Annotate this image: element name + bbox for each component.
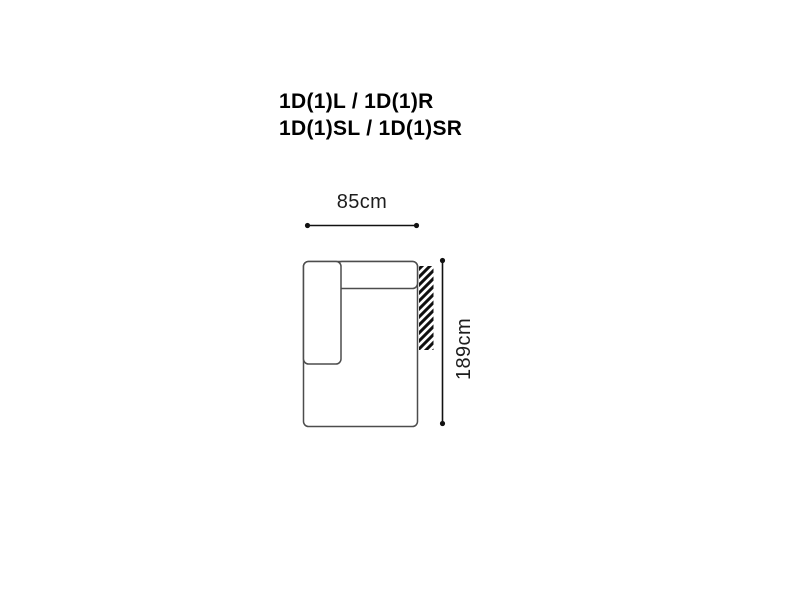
height-dimension-line [440,258,445,426]
height-dimension-top-dot-icon [440,258,445,263]
sofa-back-cushion [337,262,418,289]
sofa-left-armrest [304,262,342,365]
width-dimension-left-dot-icon [305,223,310,228]
height-dimension-bottom-dot-icon [440,421,445,426]
width-dimension-line [305,223,419,228]
product-dimension-diagram-page: 1D(1)L / 1D(1)R 1D(1)SL / 1D(1)SR 85cm 1… [0,0,800,600]
width-dimension-right-dot-icon [414,223,419,228]
sofa-top-view-drawing [0,0,800,600]
connection-side-hatch-icon [419,266,434,350]
